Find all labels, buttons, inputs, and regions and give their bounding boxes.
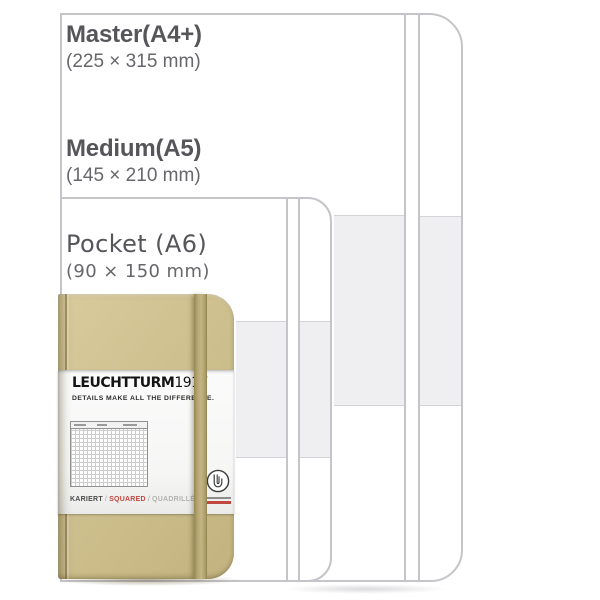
pocket-size-dimensions: (90 × 150 mm) — [66, 261, 210, 283]
master-elastic-strip — [404, 15, 420, 580]
ruling-english: SQUARED — [109, 496, 146, 503]
medium-size-name: Medium(A5) — [66, 135, 201, 163]
ruling-german: KARIERT — [70, 496, 103, 503]
paper-label-band: LEUCHTTURM1917 DETAILS MAKE ALL THE DIFF… — [58, 370, 234, 514]
pocket-size-name: Pocket (A6) — [66, 231, 210, 259]
brand-wordmark: LEUCHTTURM1917 — [72, 375, 208, 391]
product-size-comparison-image: Master(A4+) (225 × 315 mm) Medium(A5) (1… — [0, 0, 600, 600]
pocket-size-label: Pocket (A6) (90 × 150 mm) — [66, 231, 210, 282]
master-size-label: Master(A4+) (225 × 315 mm) — [66, 21, 202, 73]
medium-size-label: Medium(A5) (145 × 210 mm) — [66, 135, 201, 187]
master-size-dimensions: (225 × 315 mm) — [66, 51, 202, 74]
ruling-type-label: KARIERT/SQUARED/QUADRILLÉ — [70, 496, 195, 503]
faint-ground-shadow — [283, 584, 448, 594]
squared-paper-header — [71, 422, 147, 429]
squared-paper-preview — [70, 421, 148, 487]
brand-name: LEUCHTTURM — [72, 375, 174, 391]
logo-caption-line1 — [206, 497, 231, 499]
logo-caption-line2 — [206, 501, 231, 504]
brand-tagline: DETAILS MAKE ALL THE DIFFERENCE. — [72, 395, 214, 402]
medium-size-dimensions: (145 × 210 mm) — [66, 165, 201, 188]
master-size-name: Master(A4+) — [66, 21, 202, 49]
ruling-french: QUADRILLÉ — [152, 496, 195, 503]
medium-elastic-strip — [286, 199, 300, 580]
pocket-notebook-photo: LEUCHTTURM1917 DETAILS MAKE ALL THE DIFF… — [58, 294, 234, 579]
elastic-closure-band — [194, 294, 207, 579]
leuchtturm-logo-icon — [206, 469, 230, 493]
